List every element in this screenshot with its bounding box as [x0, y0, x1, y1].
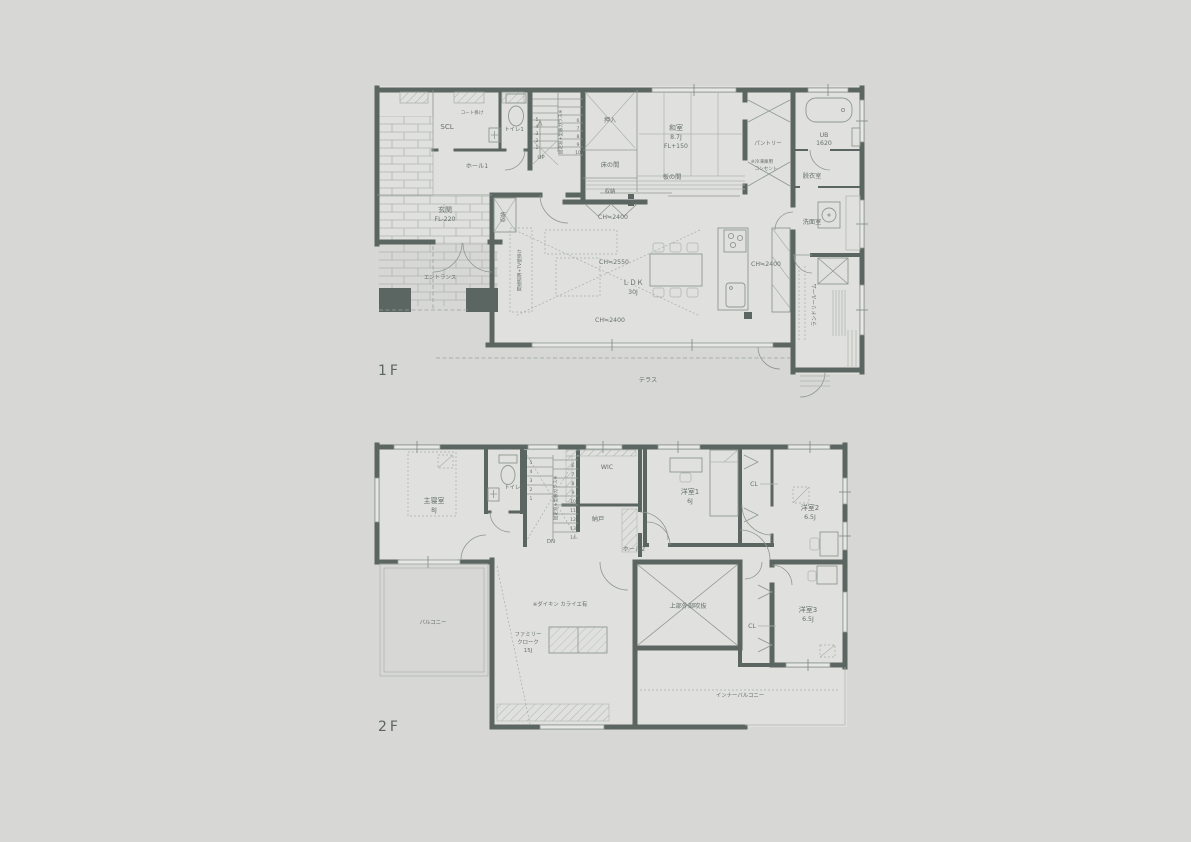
step-number: 8: [577, 134, 580, 140]
step-number: 3: [536, 131, 539, 137]
room-label-cl2: CL: [748, 623, 756, 630]
step-number: 3: [530, 478, 533, 484]
step-number: 1: [536, 145, 539, 151]
room-label-yoshitsu3: 洋室3: [799, 605, 817, 614]
floor2-label: 2F: [378, 719, 401, 735]
room-label-yoshitsu3-size: 6.5J: [802, 616, 814, 623]
room-label-inner-balcony: インナーバルコニー: [716, 692, 764, 699]
step-number: 13: [570, 526, 576, 532]
step-number: 14: [570, 535, 576, 541]
stairs-dn-label: DN: [547, 539, 555, 545]
room-label-yoshitsu2-size: 6.5J: [804, 514, 816, 521]
room-label-oshiire: 押入: [604, 116, 616, 124]
room-label-nando: 納戸: [592, 515, 604, 523]
room-label-genkan-fl: FL-220: [435, 216, 456, 223]
note-tv-wall: 間接照明+TV壁掛け: [516, 249, 523, 291]
room-label-family-cloak-3: 15J: [524, 648, 533, 654]
terrace-label: テラス: [639, 377, 657, 384]
room-label-hall2: ホール2: [623, 546, 646, 553]
step-number: 6: [577, 118, 580, 124]
step-number: 8: [572, 481, 575, 487]
step-number: 5: [536, 117, 539, 123]
room-label-pantry: パントリー: [754, 140, 781, 147]
room-label-ub-size: 1620: [816, 140, 832, 147]
step-number: 5: [530, 460, 533, 466]
step-number: 9: [572, 490, 575, 496]
step-number: 10: [575, 150, 581, 156]
floor-plan-canvas: SCL コート掛け トイレ1 UP 固定窓+型板ガラス※ 押入 床の間 収納 ホ…: [0, 0, 1191, 842]
step-number: 10: [570, 499, 576, 505]
note-freezer-1: ※冷凍庫用: [751, 158, 774, 165]
room-label-datsuishitsu: 脱衣室: [803, 172, 822, 180]
room-label-master: 主寝室: [424, 496, 445, 505]
floor-plan-sheet: SCL コート掛け トイレ1 UP 固定窓+型板ガラス※ 押入 床の間 収納 ホ…: [0, 0, 1191, 842]
step-number: 2: [530, 487, 533, 493]
floor1-plan: SCL コート掛け トイレ1 UP 固定窓+型板ガラス※ 押入 床の間 収納 ホ…: [375, 84, 868, 397]
step-number: 6: [572, 463, 575, 469]
room-label-void: 上部外部吹抜: [669, 602, 706, 610]
step-number: 7: [572, 472, 575, 478]
room-label-family-cloak-2: クローク: [517, 639, 539, 646]
step-number: 9: [577, 142, 580, 148]
room-label-genkan: 玄関: [438, 205, 452, 214]
room-label-ub: UB: [820, 132, 829, 139]
room-label-laundry: ランドリールーム: [811, 283, 818, 327]
stair-note-1f: 固定窓+型板ガラス※: [557, 110, 564, 155]
room-label-yoshitsu1-size: 6J: [687, 498, 693, 505]
step-number: 2: [536, 138, 539, 144]
room-label-tokonoma: 床の間: [601, 161, 620, 169]
note-ch-mid: CH≒2550: [599, 259, 629, 266]
room-label-toilet1: トイレ1: [504, 127, 524, 133]
step-number: 4: [530, 469, 533, 475]
floor1-label: 1F: [378, 363, 401, 379]
room-label-washitsu: 和室: [669, 123, 683, 132]
room-label-entrance: エントランス: [424, 274, 456, 281]
step-number: 7: [577, 126, 580, 132]
note-coat-hook: コート掛け: [461, 109, 484, 116]
step-number: 4: [536, 124, 539, 130]
room-label-hall1: ホール1: [466, 163, 489, 170]
stair-note-2f: 固定窓+型板ガラス※: [552, 476, 559, 521]
room-label-yoshitsu2: 洋室2: [801, 503, 819, 512]
note-ch-bottom: CH≒2400: [595, 317, 625, 324]
note-ch-right: CH≒2400: [751, 261, 781, 268]
room-label-senmenshitsu: 洗面室: [803, 218, 822, 226]
room-label-washitsu-fl: FL+150: [664, 143, 688, 150]
room-label-wic: WIC: [601, 464, 613, 471]
room-label-toilet2: トイレ2: [504, 485, 524, 491]
step-number: 11: [570, 508, 576, 514]
floor2-plan: 主寝室 8J トイレ2 DN 固定窓+型板ガラス※ WIC 納戸 ホール2 洋室…: [375, 441, 851, 735]
room-label-closet-ldk: 収納: [499, 212, 507, 223]
note-ch-top: CH≒2400: [598, 214, 628, 221]
stairs-up-label: UP: [537, 155, 545, 161]
room-label-closet: 収納: [605, 187, 616, 195]
room-label-ldk-size: 30J: [628, 289, 638, 296]
step-number: 12: [570, 517, 576, 523]
note-freezer-2: コンセント: [755, 166, 778, 172]
room-label-yoshitsu1: 洋室1: [681, 487, 699, 496]
room-label-balcony: バルコニー: [420, 619, 447, 626]
room-label-family-cloak-1: ファミリー: [515, 631, 542, 638]
room-label-itanoma: 板の間: [663, 173, 682, 181]
room-label-scl: SCL: [440, 123, 453, 131]
note-daikin: ※ダイキン カライエ有: [533, 600, 588, 608]
room-label-washitsu-size: 8.7J: [670, 134, 682, 141]
room-label-master-size: 8J: [431, 507, 437, 514]
room-label-cl1: CL: [750, 481, 758, 488]
step-number: 1: [530, 496, 533, 502]
room-label-ldk: ＬＤＫ: [623, 279, 644, 287]
